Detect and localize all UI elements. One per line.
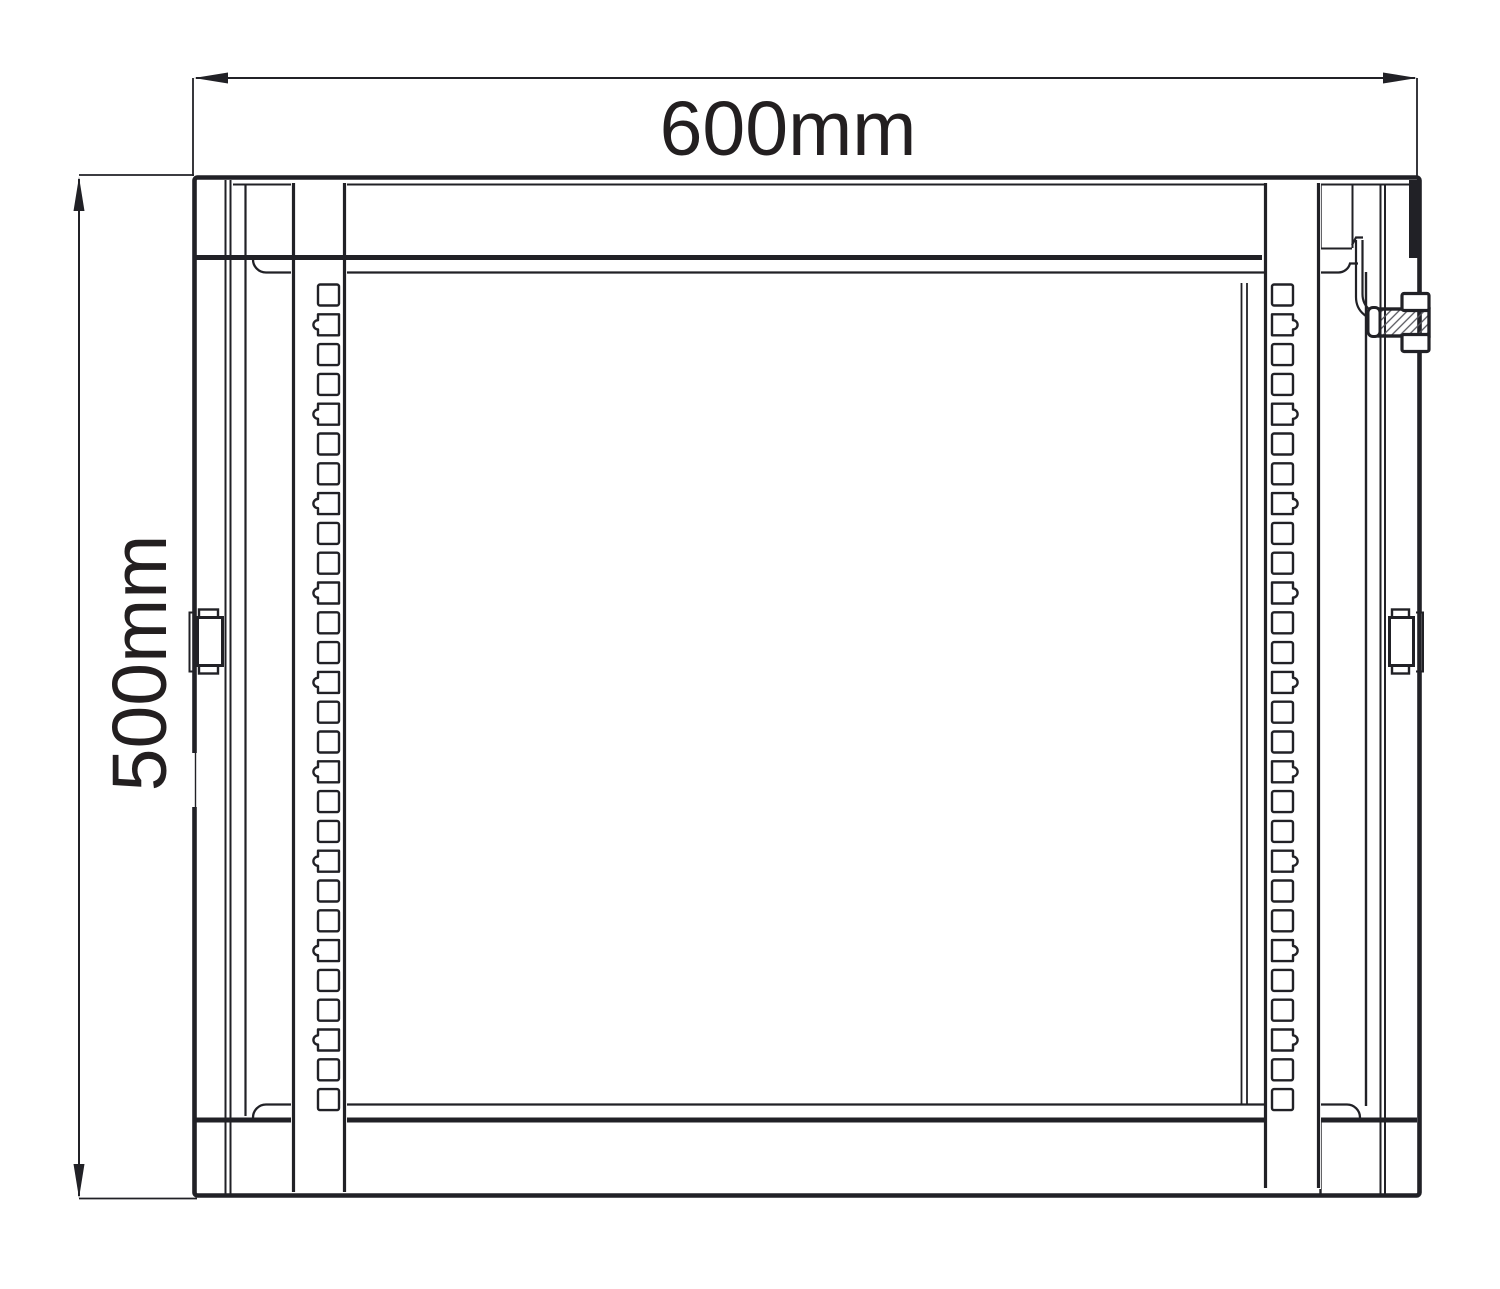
rail-hole-notched xyxy=(313,314,339,335)
rail-hole-square xyxy=(1272,702,1293,723)
rail-hole-square xyxy=(318,910,339,931)
rail-hole-notched xyxy=(1272,404,1298,425)
rail-hole-notched xyxy=(1272,940,1298,961)
rail-hole-notched xyxy=(1272,583,1298,604)
rail-hole-square xyxy=(318,1089,339,1110)
rail-hole-square xyxy=(318,732,339,753)
rail-hole-notched xyxy=(313,583,339,604)
rail-hole-square xyxy=(1272,821,1293,842)
rail-hole-square xyxy=(318,463,339,484)
opening-top-edge xyxy=(253,260,1358,273)
right-hinge-body xyxy=(1390,618,1414,666)
width-dimension: 600mm xyxy=(193,73,1417,178)
rail-hole-square xyxy=(318,434,339,455)
rail-hole-square xyxy=(318,821,339,842)
rail-hole-square xyxy=(1272,791,1293,812)
rail-hole-notched xyxy=(313,1030,339,1051)
rail-hole-square xyxy=(318,702,339,723)
latch-rod-inner xyxy=(1363,240,1377,315)
cabinet-drawing: 600mm 500mm xyxy=(0,0,1500,1289)
rail-hole-square xyxy=(1272,910,1293,931)
rail-hole-square xyxy=(1272,881,1293,902)
rail-hole-square xyxy=(1272,434,1293,455)
door-edge-top-section xyxy=(1409,180,1420,258)
lock-clip xyxy=(1368,308,1380,337)
rail-hole-notched xyxy=(313,672,339,693)
rail-hole-notched xyxy=(1272,1030,1298,1051)
rail-hole-square xyxy=(1272,1000,1293,1021)
rail-hole-square xyxy=(1272,642,1293,663)
rail-hole-notched xyxy=(1272,761,1298,782)
left-hinge-body xyxy=(198,618,223,666)
rail-hole-square xyxy=(1272,285,1293,306)
rail-hole-square xyxy=(1272,523,1293,544)
rail-hole-square xyxy=(318,612,339,633)
rail-hole-notched xyxy=(313,761,339,782)
rail-hole-notched xyxy=(1272,314,1298,335)
rail-hole-square xyxy=(318,344,339,365)
lock-flange-bottom xyxy=(1402,335,1429,352)
rail-hole-square xyxy=(1272,732,1293,753)
height-dim-arrow-top xyxy=(74,177,85,211)
rail-edges xyxy=(294,183,1319,1192)
opening-bottom-edge xyxy=(253,1105,1360,1118)
rail-hole-square xyxy=(1272,1089,1293,1110)
rail-hole-square xyxy=(1272,1059,1293,1080)
rail-hole-square xyxy=(318,642,339,663)
rail-hole-notched xyxy=(1272,672,1298,693)
rail-hole-square xyxy=(1272,374,1293,395)
rail-hole-square xyxy=(1272,463,1293,484)
height-dim-arrow-bottom xyxy=(74,1164,85,1198)
width-dim-arrow-right xyxy=(1383,73,1417,84)
rail-hole-square xyxy=(318,523,339,544)
rail-hole-square xyxy=(318,285,339,306)
rail-hole-square xyxy=(318,970,339,991)
rail-hole-notched xyxy=(313,404,339,425)
drawing-canvas: 600mm 500mm xyxy=(0,0,1500,1289)
rail-hole-square xyxy=(318,1000,339,1021)
cabinet-frame xyxy=(195,178,1421,1196)
rail-hole-square xyxy=(318,1059,339,1080)
rail-hole-square xyxy=(318,553,339,574)
height-dimension: 500mm xyxy=(74,175,198,1199)
rail-hole-notched xyxy=(313,493,339,514)
lock-flange-top xyxy=(1402,294,1429,311)
width-dim-arrow-left xyxy=(194,73,228,84)
rail-hole-square xyxy=(318,791,339,812)
rail-hole-square xyxy=(1272,553,1293,574)
rail-hole-square xyxy=(318,374,339,395)
rail-hole-notched xyxy=(313,851,339,872)
left-panel-joint xyxy=(191,753,198,807)
rail-hole-notched xyxy=(1272,493,1298,514)
rail-hole-notched xyxy=(313,940,339,961)
width-dimension-label: 600mm xyxy=(660,86,917,172)
rail-hole-square xyxy=(1272,970,1293,991)
door-lock xyxy=(1368,294,1429,352)
rail-hole-notched xyxy=(1272,851,1298,872)
rail-hole-square xyxy=(318,881,339,902)
rail-hole-square xyxy=(1272,344,1293,365)
height-dimension-label: 500mm xyxy=(97,535,183,792)
rail-hole-square xyxy=(1272,612,1293,633)
cabinet-outer-shell xyxy=(195,178,1420,1196)
lock-cylinder-body xyxy=(1379,309,1429,336)
